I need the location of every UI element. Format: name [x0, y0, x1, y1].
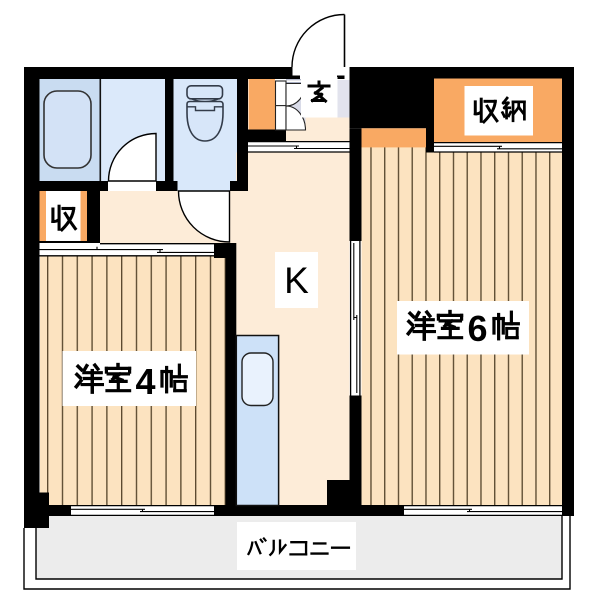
svg-text:6: 6 [467, 308, 487, 349]
svg-text:K: K [284, 260, 309, 301]
svg-text:4: 4 [135, 361, 155, 402]
